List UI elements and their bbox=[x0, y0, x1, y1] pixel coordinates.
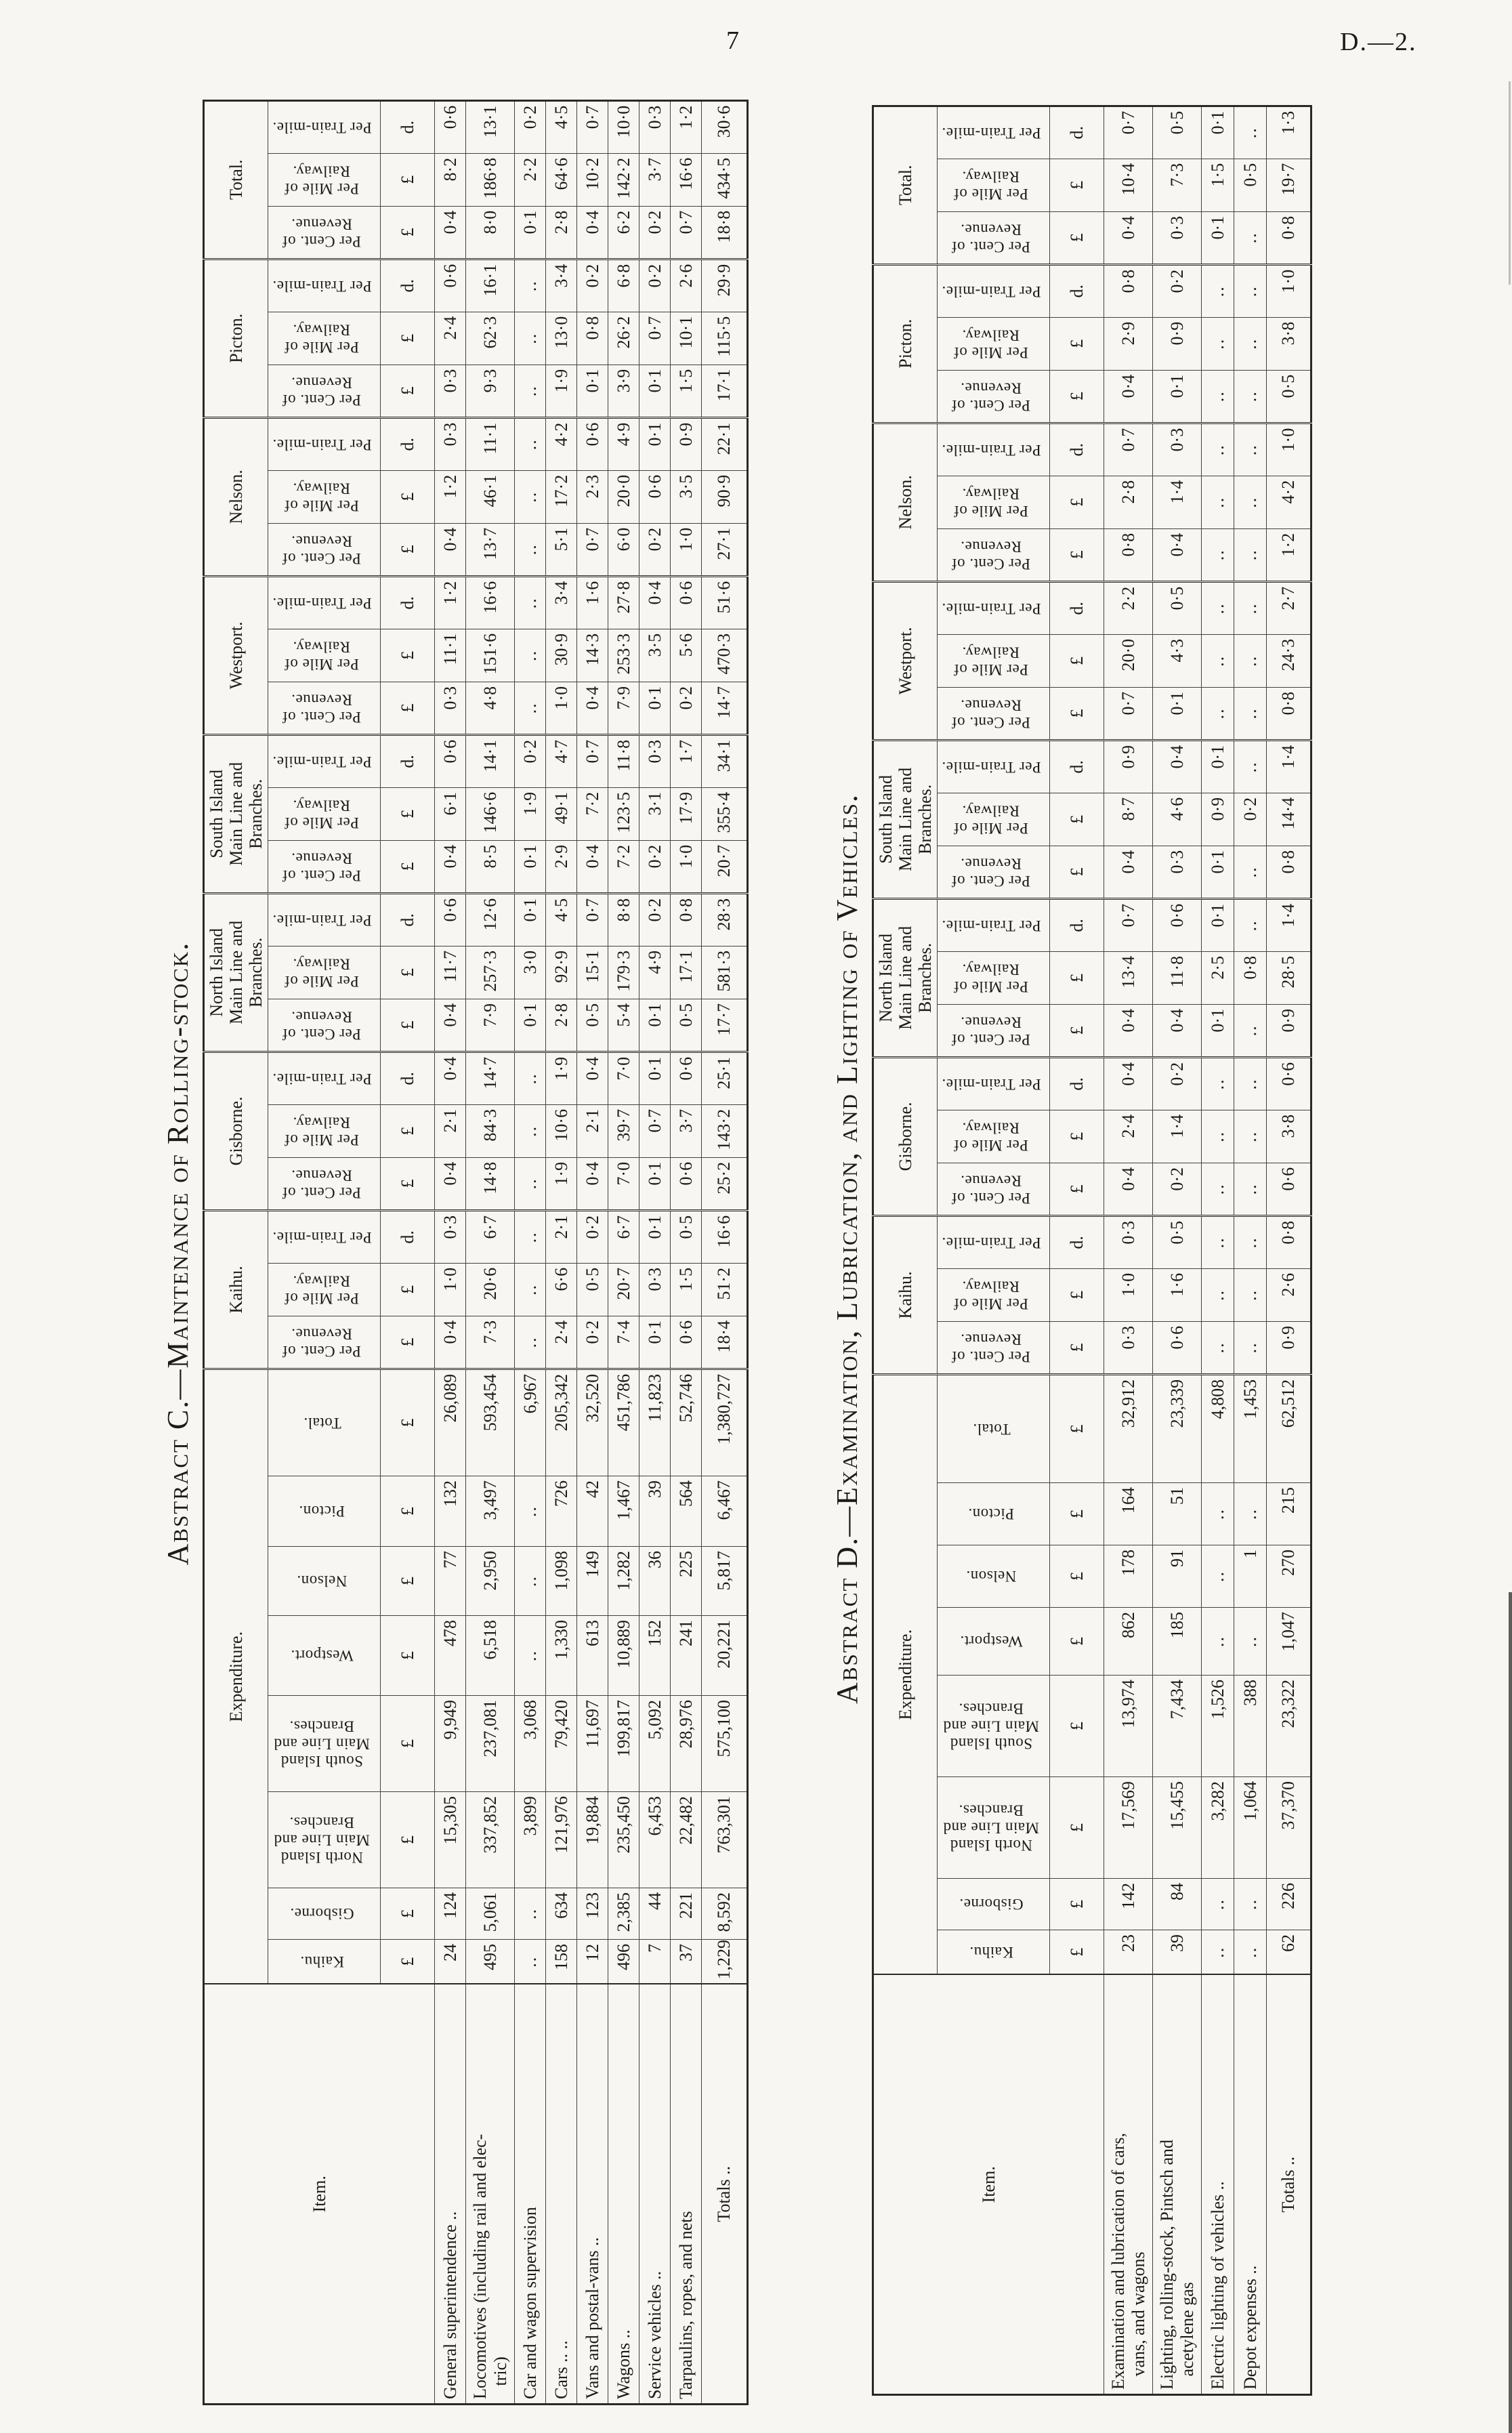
row-label: Car and wagon supervision bbox=[515, 1984, 546, 2405]
expenditure-value: 19,884 bbox=[577, 1792, 608, 1888]
vertical-label: Per Cent. of Revenue. bbox=[269, 373, 375, 409]
ratio-value: 4·2 bbox=[1267, 476, 1311, 528]
expenditure-value: 121,976 bbox=[546, 1792, 577, 1888]
ratio-value: .. bbox=[1234, 740, 1267, 793]
ratio-value: 0·9 bbox=[671, 417, 702, 470]
ratio-value: .. bbox=[1202, 1215, 1234, 1268]
expenditure-value: 32,912 bbox=[1104, 1374, 1153, 1482]
expenditure-value: 6,967 bbox=[515, 1369, 546, 1476]
ratio-value: .. bbox=[1234, 1268, 1267, 1321]
expenditure-value: 6,467 bbox=[702, 1476, 748, 1547]
ratio-value: 0·6 bbox=[1153, 1321, 1202, 1374]
ratio-subheader: Per Mile of Railway. bbox=[938, 793, 1050, 846]
expenditure-value: 237,081 bbox=[466, 1696, 515, 1792]
expenditure-value: 20,221 bbox=[702, 1616, 748, 1696]
unit-cell: £ bbox=[381, 1316, 435, 1369]
ratio-value: 92·9 bbox=[546, 946, 577, 999]
ratio-value: 2·3 bbox=[577, 470, 608, 523]
ratio-value: 0·1 bbox=[1202, 898, 1234, 951]
region-group-header: Gisborne. bbox=[204, 1052, 268, 1210]
ratio-value: 7·4 bbox=[608, 1316, 639, 1369]
ratio-subheader: Per Mile of Railway. bbox=[938, 317, 1050, 370]
ratio-value: 146·6 bbox=[466, 787, 515, 840]
unit-cell: £ bbox=[381, 1476, 435, 1547]
ratio-value: 16·6 bbox=[671, 153, 702, 206]
ratio-value: 0·1 bbox=[1153, 687, 1202, 740]
ratio-value: 4·9 bbox=[639, 946, 671, 999]
ratio-value: 6·8 bbox=[608, 259, 639, 312]
ratio-subheader: Per Train-mile. bbox=[268, 1052, 381, 1104]
ratio-value: 0·2 bbox=[1153, 1057, 1202, 1110]
ratio-subheader: Per Cent. of Revenue. bbox=[268, 682, 381, 734]
expenditure-region-header: Kaihu. bbox=[938, 1930, 1050, 1975]
ratio-value: 16·1 bbox=[466, 259, 515, 312]
expenditure-value: .. bbox=[515, 1940, 546, 1984]
table-row: Electric lighting of vehicles ......3,28… bbox=[1202, 106, 1234, 2394]
unit-cell: d. bbox=[1050, 1057, 1104, 1110]
vertical-label: Per Cent. of Revenue. bbox=[269, 532, 375, 567]
expenditure-value: 13,974 bbox=[1104, 1676, 1153, 1777]
ratio-value: 20·0 bbox=[1104, 634, 1153, 687]
ratio-subheader: Per Cent. of Revenue. bbox=[938, 211, 1050, 264]
expenditure-value: 15,305 bbox=[435, 1792, 466, 1888]
ratio-value: 10·1 bbox=[671, 312, 702, 365]
ratio-value: 0·7 bbox=[1104, 106, 1153, 159]
vertical-label: Per Train-mile. bbox=[942, 917, 1041, 934]
ratio-value: 1·0 bbox=[1267, 423, 1311, 476]
expenditure-region-header: Westport. bbox=[938, 1608, 1050, 1676]
ratio-value: 3·8 bbox=[1267, 317, 1311, 370]
row-label: General superintendence .. bbox=[435, 1984, 466, 2405]
expenditure-region-header: Nelson. bbox=[938, 1545, 1050, 1608]
row-label: Electric lighting of vehicles .. bbox=[1202, 1975, 1234, 2395]
expenditure-value: .. bbox=[1234, 1930, 1267, 1975]
ratio-value: 0·6 bbox=[577, 417, 608, 470]
unit-cell: £ bbox=[381, 840, 435, 893]
ratio-value: .. bbox=[1202, 1057, 1234, 1110]
ratio-value: 115·5 bbox=[702, 312, 748, 365]
page-number: 7 bbox=[726, 26, 740, 56]
scan-edge-artifact-top bbox=[1509, 81, 1511, 285]
ratio-value: 18·8 bbox=[702, 206, 748, 259]
row-label: Service vehicles .. bbox=[639, 1984, 671, 2405]
ratio-value: .. bbox=[515, 259, 546, 312]
ratio-value: 9·3 bbox=[466, 365, 515, 417]
ratio-value: 0·5 bbox=[1234, 159, 1267, 211]
ratio-value: 1·0 bbox=[671, 840, 702, 893]
ratio-subheader: Per Cent. of Revenue. bbox=[938, 370, 1050, 423]
ratio-subheader: Per Train-mile. bbox=[268, 417, 381, 470]
expenditure-region-header: Picton. bbox=[268, 1476, 381, 1547]
ratio-value: 0·1 bbox=[515, 893, 546, 946]
ratio-value: 0·9 bbox=[1104, 740, 1153, 793]
expenditure-value: 24 bbox=[435, 1940, 466, 1984]
vertical-label: Per Train-mile. bbox=[272, 277, 372, 295]
ratio-value: 49·1 bbox=[546, 787, 577, 840]
expenditure-value: 199,817 bbox=[608, 1696, 639, 1792]
ratio-value: 51·2 bbox=[702, 1263, 748, 1316]
ratio-value: 7·2 bbox=[608, 840, 639, 893]
ratio-value: 14·1 bbox=[466, 734, 515, 787]
unit-cell: d. bbox=[1050, 106, 1104, 159]
abstract-d-block: Abstract D.—Examination, Lubrication, an… bbox=[822, 102, 1312, 2396]
ratio-value: 3·1 bbox=[639, 787, 671, 840]
expenditure-value: 124 bbox=[435, 1888, 466, 1940]
abstract-c-block: Abstract C.—Maintenance of Rolling-stock… bbox=[152, 102, 749, 2405]
ratio-value: 20·7 bbox=[702, 840, 748, 893]
ratio-value: 0·6 bbox=[435, 734, 466, 787]
ratio-subheader: Per Cent. of Revenue. bbox=[268, 1316, 381, 1369]
vertical-label: Per Mile of Railway. bbox=[938, 327, 1044, 362]
vertical-label: Per Cent. of Revenue. bbox=[269, 1007, 375, 1043]
expenditure-value: 1,467 bbox=[608, 1476, 639, 1547]
unit-cell: £ bbox=[1050, 211, 1104, 264]
region-group-header: Picton. bbox=[204, 259, 268, 417]
abstract-c-title: Abstract C.—Maintenance of Rolling-stock… bbox=[152, 102, 203, 2405]
ratio-value: 257·3 bbox=[466, 946, 515, 999]
ratio-subheader: Per Mile of Railway. bbox=[268, 470, 381, 523]
ratio-value: 39·7 bbox=[608, 1104, 639, 1157]
ratio-value: 0·1 bbox=[639, 417, 671, 470]
ratio-value: 0·8 bbox=[1234, 951, 1267, 1004]
table-row: General superintendence ..2412415,3059,9… bbox=[435, 100, 466, 2404]
region-group-header: Nelson. bbox=[204, 417, 268, 576]
ratio-subheader: Per Cent. of Revenue. bbox=[268, 206, 381, 259]
ratio-value: 26·2 bbox=[608, 312, 639, 365]
ratio-value: .. bbox=[1234, 476, 1267, 528]
expenditure-value: 6,518 bbox=[466, 1616, 515, 1696]
vertical-label: Total. bbox=[973, 1420, 1011, 1438]
ratio-value: 2·9 bbox=[1104, 317, 1153, 370]
ratio-subheader: Per Mile of Railway. bbox=[938, 634, 1050, 687]
region-group-header: Westport. bbox=[873, 581, 938, 740]
ratio-value: 0·8 bbox=[1104, 264, 1153, 317]
ratio-value: 2·8 bbox=[1104, 476, 1153, 528]
expenditure-value: 3,899 bbox=[515, 1792, 546, 1888]
ratio-value: 7·9 bbox=[466, 999, 515, 1052]
ratio-value: 0·4 bbox=[577, 206, 608, 259]
ratio-value: .. bbox=[1202, 1321, 1234, 1374]
ratio-value: .. bbox=[515, 417, 546, 470]
ratio-value: 0·2 bbox=[1234, 793, 1267, 846]
ratio-value: 12·6 bbox=[466, 893, 515, 946]
region-group-header: South Island Main Line and Branches. bbox=[873, 740, 938, 898]
expenditure-value: 8,592 bbox=[702, 1888, 748, 1940]
expenditure-value: 91 bbox=[1153, 1545, 1202, 1608]
expenditure-value: 62 bbox=[1267, 1930, 1311, 1975]
ratio-value: 14·3 bbox=[577, 629, 608, 682]
ratio-value: .. bbox=[1234, 634, 1267, 687]
ratio-value: 3·4 bbox=[546, 576, 577, 629]
ratio-value: 0·9 bbox=[1153, 317, 1202, 370]
ratio-value: 1·4 bbox=[1267, 898, 1311, 951]
ratio-value: .. bbox=[1234, 1321, 1267, 1374]
unit-cell: £ bbox=[1050, 1930, 1104, 1975]
expenditure-value: 1,064 bbox=[1234, 1777, 1267, 1879]
ratio-value: 7·3 bbox=[466, 1316, 515, 1369]
ratio-value: 0·4 bbox=[577, 1157, 608, 1210]
ratio-value: 0·3 bbox=[1104, 1321, 1153, 1374]
expenditure-value: 215 bbox=[1267, 1483, 1311, 1545]
ratio-value: 8·5 bbox=[466, 840, 515, 893]
ratio-value: 28·3 bbox=[702, 893, 748, 946]
unit-cell: £ bbox=[381, 1157, 435, 1210]
ratio-value: 0·3 bbox=[1153, 846, 1202, 898]
ratio-subheader: Per Train-mile. bbox=[938, 1057, 1050, 1110]
ratio-subheader: Per Mile of Railway. bbox=[938, 476, 1050, 528]
ratio-value: 0·4 bbox=[1104, 846, 1153, 898]
ratio-subheader: Per Cent. of Revenue. bbox=[268, 999, 381, 1052]
ratio-value: 1·9 bbox=[515, 787, 546, 840]
vertical-label: Per Cent. of Revenue. bbox=[938, 854, 1044, 890]
expenditure-value: 1,453 bbox=[1234, 1374, 1267, 1482]
ratio-subheader: Per Mile of Railway. bbox=[268, 946, 381, 999]
table-row: Service vehicles ..7446,4535,09215236391… bbox=[639, 100, 671, 2404]
ratio-subheader: Per Cent. of Revenue. bbox=[938, 1321, 1050, 1374]
expenditure-value: 763,301 bbox=[702, 1792, 748, 1888]
unit-cell: £ bbox=[381, 1696, 435, 1792]
ratio-value: 0·6 bbox=[435, 100, 466, 153]
ratio-value: 27·1 bbox=[702, 523, 748, 576]
unit-cell: £ bbox=[1050, 370, 1104, 423]
expenditure-value: 132 bbox=[435, 1476, 466, 1547]
vertical-label: North Island Main Line and Branches. bbox=[938, 1802, 1044, 1854]
ratio-value: 0·1 bbox=[577, 365, 608, 417]
ratio-value: 2·4 bbox=[1104, 1110, 1153, 1163]
unit-cell: £ bbox=[381, 1263, 435, 1316]
unit-cell: £ bbox=[1050, 1374, 1104, 1482]
expenditure-value: 152 bbox=[639, 1616, 671, 1696]
expenditure-value: 79,420 bbox=[546, 1696, 577, 1792]
ratio-value: .. bbox=[1234, 581, 1267, 634]
ratio-value: .. bbox=[1234, 687, 1267, 740]
region-group-header: Westport. bbox=[204, 576, 268, 734]
ratio-value: 253·3 bbox=[608, 629, 639, 682]
ratio-value: 0·7 bbox=[639, 1104, 671, 1157]
ratio-value: 0·8 bbox=[1267, 846, 1311, 898]
ratio-value: 0·8 bbox=[1267, 211, 1311, 264]
ratio-value: .. bbox=[1202, 1163, 1234, 1215]
unit-cell: £ bbox=[1050, 793, 1104, 846]
expenditure-value: 862 bbox=[1104, 1608, 1153, 1676]
ratio-value: 0·3 bbox=[435, 682, 466, 734]
expenditure-value: 39 bbox=[639, 1476, 671, 1547]
unit-cell: £ bbox=[1050, 1321, 1104, 1374]
ratio-value: 1·6 bbox=[577, 576, 608, 629]
ratio-value: 10·0 bbox=[608, 100, 639, 153]
vertical-label: Per Cent. of Revenue. bbox=[938, 537, 1044, 573]
ratio-subheader: Per Train-mile. bbox=[268, 734, 381, 787]
ratio-value: 1·2 bbox=[1267, 528, 1311, 581]
ratio-value: 46·1 bbox=[466, 470, 515, 523]
unit-cell: d. bbox=[1050, 581, 1104, 634]
row-label: Locomotives (including rail and elec- tr… bbox=[466, 1984, 515, 2405]
ratio-subheader: Per Mile of Railway. bbox=[938, 1110, 1050, 1163]
ratio-value: 6·7 bbox=[608, 1210, 639, 1263]
ratio-value: 0·6 bbox=[1267, 1163, 1311, 1215]
expenditure-value: 5,092 bbox=[639, 1696, 671, 1792]
ratio-value: 7·0 bbox=[608, 1052, 639, 1104]
ratio-value: 0·4 bbox=[435, 999, 466, 1052]
ratio-value: 0·2 bbox=[577, 1316, 608, 1369]
ratio-value: 8·8 bbox=[608, 893, 639, 946]
expenditure-value: 23,339 bbox=[1153, 1374, 1202, 1482]
ratio-subheader: Per Cent. of Revenue. bbox=[268, 365, 381, 417]
expenditure-value: 149 bbox=[577, 1547, 608, 1616]
expenditure-value: 495 bbox=[466, 1940, 515, 1984]
ratio-value: 20·7 bbox=[608, 1263, 639, 1316]
expenditure-value: 634 bbox=[546, 1888, 577, 1940]
ratio-value: 0·1 bbox=[1202, 846, 1234, 898]
expenditure-value: 1,047 bbox=[1267, 1608, 1311, 1676]
ratio-value: 3·5 bbox=[639, 629, 671, 682]
expenditure-value: 1,098 bbox=[546, 1547, 577, 1616]
scanned-page: { "page": { "number": "7", "doc_ref": "D… bbox=[0, 0, 1512, 2433]
ratio-value: 142·2 bbox=[608, 153, 639, 206]
region-group-header: Picton. bbox=[873, 264, 938, 423]
expenditure-region-header: Nelson. bbox=[268, 1547, 381, 1616]
ratio-value: .. bbox=[1202, 687, 1234, 740]
ratio-value: 4·6 bbox=[1153, 793, 1202, 846]
ratio-value: 1·4 bbox=[1153, 1110, 1202, 1163]
ratio-value: 0·1 bbox=[1202, 106, 1234, 159]
ratio-subheader: Per Train-mile. bbox=[268, 100, 381, 153]
unit-cell: £ bbox=[1050, 1777, 1104, 1879]
ratio-value: 7·9 bbox=[608, 682, 639, 734]
ratio-value: 4·3 bbox=[1153, 634, 1202, 687]
vertical-label: Per Mile of Railway. bbox=[269, 1272, 375, 1308]
ratio-value: 29·9 bbox=[702, 259, 748, 312]
ratio-value: 13·7 bbox=[466, 523, 515, 576]
ratio-value: 0·1 bbox=[515, 999, 546, 1052]
ratio-value: 2·6 bbox=[671, 259, 702, 312]
ratio-value: 0·6 bbox=[1267, 1057, 1311, 1110]
expenditure-value: 26,089 bbox=[435, 1369, 466, 1476]
ratio-value: 0·9 bbox=[1202, 793, 1234, 846]
vertical-label: North Island Main Line and Branches. bbox=[269, 1814, 375, 1866]
ratio-value: 1·3 bbox=[1267, 106, 1311, 159]
ratio-value: 0·1 bbox=[639, 999, 671, 1052]
expenditure-value: 1,330 bbox=[546, 1616, 577, 1696]
unit-cell: £ bbox=[1050, 476, 1104, 528]
expenditure-value: 37 bbox=[671, 1940, 702, 1984]
ratio-value: 0·4 bbox=[1104, 1004, 1153, 1057]
ratio-value: 10·6 bbox=[546, 1104, 577, 1157]
unit-cell: £ bbox=[381, 999, 435, 1052]
ratio-subheader: Per Train-mile. bbox=[938, 581, 1050, 634]
unit-cell: £ bbox=[1050, 1483, 1104, 1545]
vertical-label: Per Mile of Railway. bbox=[269, 638, 375, 673]
ratio-value: 17·1 bbox=[702, 365, 748, 417]
ratio-value: .. bbox=[515, 682, 546, 734]
ratio-value: 0·1 bbox=[639, 1210, 671, 1263]
unit-cell: £ bbox=[1050, 846, 1104, 898]
expenditure-value: .. bbox=[515, 1547, 546, 1616]
expenditure-group-header: Expenditure. bbox=[204, 1369, 268, 1984]
row-label: Lighting, rolling-stock, Pintsch and ace… bbox=[1153, 1975, 1202, 2395]
ratio-value: 1·9 bbox=[546, 1052, 577, 1104]
region-group-header: Total. bbox=[873, 106, 938, 264]
unit-cell: £ bbox=[1050, 1004, 1104, 1057]
unit-cell: £ bbox=[381, 523, 435, 576]
vertical-label: Per Train-mile. bbox=[272, 594, 372, 612]
ratio-value: .. bbox=[515, 470, 546, 523]
ratio-value: 0·6 bbox=[671, 1052, 702, 1104]
ratio-value: .. bbox=[1234, 264, 1267, 317]
table-row: Cars .. ..158634121,97679,4201,3301,0987… bbox=[546, 100, 577, 2404]
row-label: Totals .. bbox=[1267, 1975, 1311, 2395]
ratio-value: .. bbox=[1234, 846, 1267, 898]
vertical-label: Per Mile of Railway. bbox=[269, 1114, 375, 1149]
header-row-groups: Item.Expenditure.Kaihu.Gisborne.North Is… bbox=[204, 100, 268, 2404]
ratio-subheader: Per Mile of Railway. bbox=[938, 159, 1050, 211]
ratio-value: .. bbox=[1234, 1110, 1267, 1163]
ratio-value: 0·8 bbox=[1267, 1215, 1311, 1268]
ratio-value: .. bbox=[515, 629, 546, 682]
ratio-value: 0·3 bbox=[1153, 211, 1202, 264]
ratio-value: 0·6 bbox=[1153, 898, 1202, 951]
ratio-value: 3·5 bbox=[671, 470, 702, 523]
ratio-value: 4·7 bbox=[546, 734, 577, 787]
row-label: Vans and postal-vans .. bbox=[577, 1984, 608, 2405]
ratio-value: 1·0 bbox=[435, 1263, 466, 1316]
ratio-value: 1·2 bbox=[671, 100, 702, 153]
unit-cell: d. bbox=[1050, 898, 1104, 951]
ratio-value: 11·8 bbox=[1153, 951, 1202, 1004]
expenditure-value: 575,100 bbox=[702, 1696, 748, 1792]
vertical-label: Picton. bbox=[968, 1505, 1014, 1523]
unit-cell: £ bbox=[1050, 1608, 1104, 1676]
expenditure-value: 225 bbox=[671, 1547, 702, 1616]
ratio-value: 14·7 bbox=[466, 1052, 515, 1104]
unit-cell: £ bbox=[1050, 159, 1104, 211]
expenditure-value: .. bbox=[1202, 1608, 1234, 1676]
ratio-value: 1·4 bbox=[1153, 476, 1202, 528]
ratio-value: 3·9 bbox=[608, 365, 639, 417]
ratio-value: 13·1 bbox=[466, 100, 515, 153]
unit-cell: £ bbox=[381, 1616, 435, 1696]
ratio-value: 2·6 bbox=[1267, 1268, 1311, 1321]
vertical-label: Per Mile of Railway. bbox=[938, 168, 1044, 203]
ratio-value: 0·4 bbox=[1104, 1163, 1153, 1215]
row-label: Wagons .. bbox=[608, 1984, 639, 2405]
ratio-value: 0·6 bbox=[435, 893, 466, 946]
ratio-value: 17·1 bbox=[671, 946, 702, 999]
expenditure-value: 3,497 bbox=[466, 1476, 515, 1547]
ratio-value: 0·5 bbox=[1153, 106, 1202, 159]
ratio-value: 25·1 bbox=[702, 1052, 748, 1104]
ratio-value: 17·7 bbox=[702, 999, 748, 1052]
ratio-value: .. bbox=[515, 1263, 546, 1316]
ratio-value: 0·8 bbox=[1267, 687, 1311, 740]
expenditure-value: .. bbox=[1234, 1879, 1267, 1930]
vertical-label: Per Train-mile. bbox=[272, 119, 372, 136]
table-row: Depot expenses ......1,064388..1..1,453.… bbox=[1234, 106, 1267, 2394]
ratio-value: 2·1 bbox=[435, 1104, 466, 1157]
region-group-header: Nelson. bbox=[873, 423, 938, 581]
ratio-subheader: Per Train-mile. bbox=[268, 576, 381, 629]
ratio-value: 1·0 bbox=[1104, 1268, 1153, 1321]
vertical-label: Per Train-mile. bbox=[272, 436, 372, 453]
ratio-value: .. bbox=[1234, 1215, 1267, 1268]
vertical-label: Per Train-mile. bbox=[942, 600, 1041, 617]
ratio-value: 0·2 bbox=[515, 100, 546, 153]
ratio-value: .. bbox=[1234, 106, 1267, 159]
expenditure-value: 478 bbox=[435, 1616, 466, 1696]
ratio-value: 0·9 bbox=[1267, 1321, 1311, 1374]
unit-cell: £ bbox=[1050, 528, 1104, 581]
vertical-label: Per Train-mile. bbox=[272, 1070, 372, 1087]
